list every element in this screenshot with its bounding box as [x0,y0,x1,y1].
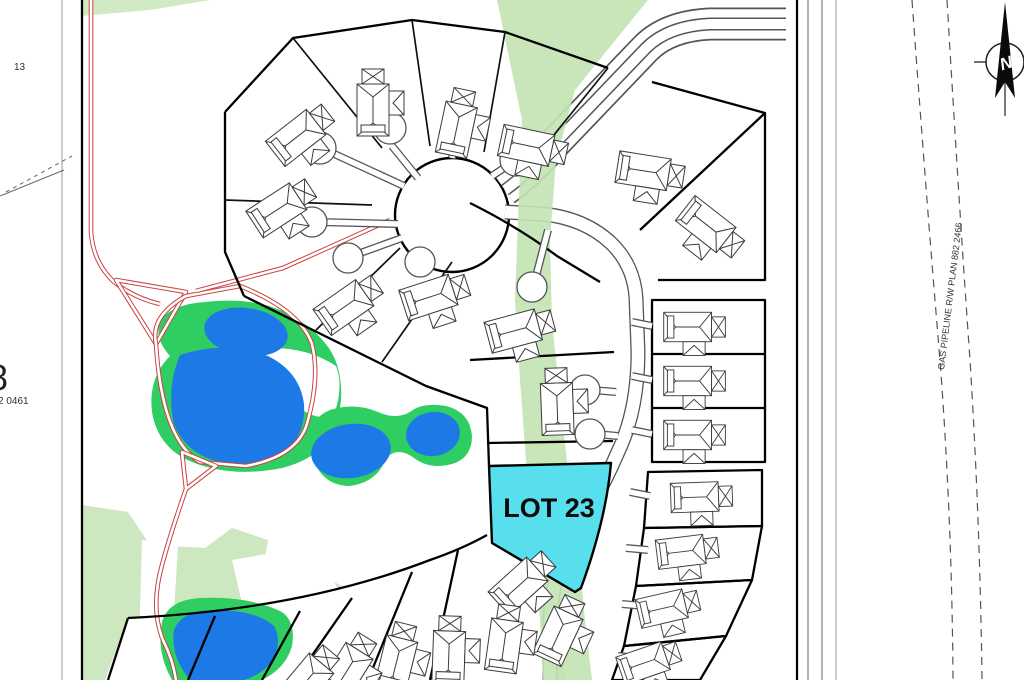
parcel-number-13: 13 [14,62,26,73]
pipeline-rw-dashed-east [947,0,982,680]
pond-blue-south [173,610,278,680]
site-plan-page: LOT 23 13 8 2 0461 GAS PIPELINE R/W PLAN… [0,0,1024,680]
partial-plan-number: 2 0461 [0,396,29,407]
right-margin: GAS PIPELINE R/W PLAN 882 2466 [797,0,982,680]
site-plan-map: LOT 23 13 8 2 0461 GAS PIPELINE R/W PLAN… [0,0,1024,680]
lot-23-label: LOT 23 [503,493,595,523]
north-arrow-icon: N [974,2,1024,116]
greenbelt-sliver [82,0,210,16]
gas-pipeline-label: GAS PIPELINE R/W PLAN 882 2466 [936,222,964,370]
partial-large-digit: 8 [0,357,8,398]
left-margin: 13 8 2 0461 [0,0,72,680]
